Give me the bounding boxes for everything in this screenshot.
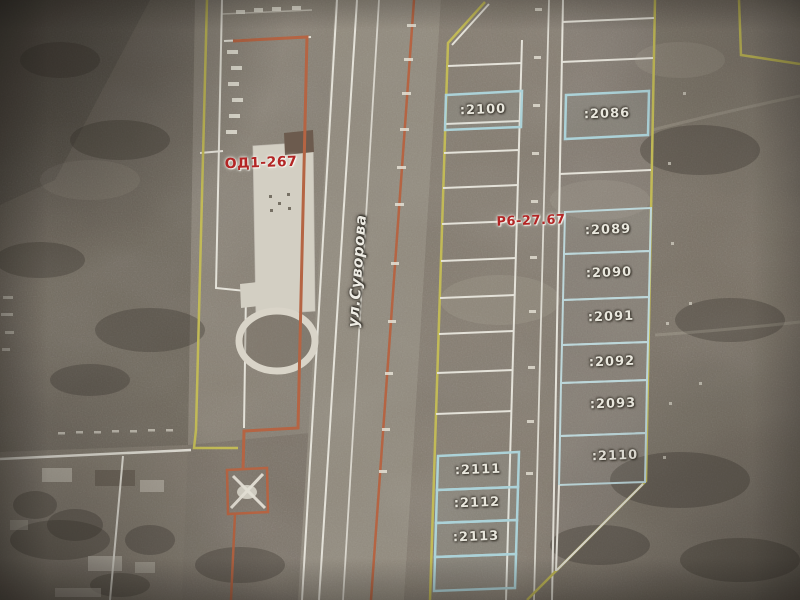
- parcel-2091: [562, 297, 649, 345]
- parcel-2093: [560, 380, 647, 436]
- warehouse-building: [253, 142, 315, 315]
- parcel-2100: [445, 91, 522, 130]
- terrain-texture: [0, 0, 800, 600]
- parcel-2089: [564, 208, 651, 254]
- parcel-2111: [436, 487, 518, 523]
- parcel-2090: [563, 251, 650, 300]
- parcel-2086: [565, 91, 649, 139]
- parcel-2112: [435, 520, 517, 557]
- parcel-2113: [434, 554, 516, 591]
- parcel-2092: [561, 342, 648, 383]
- parcel-2094: [559, 433, 646, 485]
- highlighted-parcels-right: [559, 208, 651, 485]
- parcel-2110: [437, 452, 519, 490]
- round-tank: [239, 311, 315, 371]
- map-canvas: [0, 0, 800, 600]
- cadastral-map-photo: ул.Суворова ОД1-267 Р6-27.67 :2100 :2086…: [0, 0, 800, 600]
- annex-building: [240, 282, 259, 308]
- dark-roof: [284, 130, 314, 155]
